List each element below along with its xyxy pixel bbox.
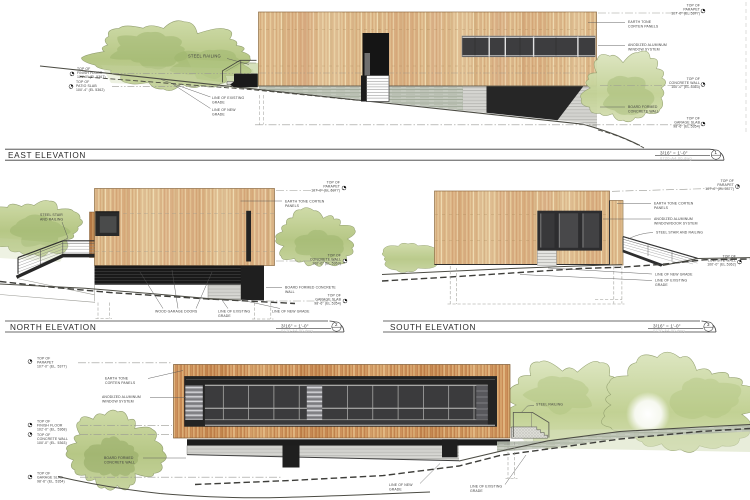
svg-text:AND RAILING: AND RAILING [40,218,63,222]
svg-text:LINE OF EXISTING: LINE OF EXISTING [212,96,244,100]
svg-text:BOARD FORMED: BOARD FORMED [104,456,134,460]
svg-text:0720-A4.00.dwg: 0720-A4.00.dwg [653,328,685,333]
svg-text:PANELS: PANELS [654,206,669,210]
svg-text:WINDOW SYSTEM: WINDOW SYSTEM [102,400,134,404]
svg-text:98'-6" (EL. 5354): 98'-6" (EL. 5354) [37,480,65,484]
svg-text:LINE OF EXISTING: LINE OF EXISTING [218,310,250,314]
svg-text:LINE OF NEW GRADE: LINE OF NEW GRADE [655,273,693,277]
svg-text:107'-0" (EL.5377): 107'-0" (EL.5377) [671,12,700,16]
svg-text:CONCRETE WALL: CONCRETE WALL [628,110,659,114]
svg-text:107'-0" (EL. 5377): 107'-0" (EL. 5377) [37,365,67,369]
svg-text:ANODIZED ALUMINUM: ANODIZED ALUMINUM [654,217,693,221]
svg-text:STEEL RAILING: STEEL RAILING [188,54,221,59]
svg-text:CORTEN PANELS: CORTEN PANELS [105,381,136,385]
svg-text:STEEL STAIR: STEEL STAIR [40,213,63,217]
svg-text:GRADE: GRADE [212,113,225,117]
svg-text:EARTH TONE: EARTH TONE [628,20,652,24]
svg-text:100'-0" (EL.5362): 100'-0" (EL.5362) [707,263,736,267]
svg-text:EARTH TONE: EARTH TONE [105,377,129,381]
svg-text:LINE OF EXISTING: LINE OF EXISTING [655,279,687,283]
svg-text:100'-0" (EL. 5363): 100'-0" (EL. 5363) [37,441,67,445]
svg-text:EAST ELEVATION: EAST ELEVATION [8,151,86,160]
svg-text:ANODIZED ALUMINUM: ANODIZED ALUMINUM [628,43,667,47]
svg-text:WOOD GARAGE DOORS: WOOD GARAGE DOORS [155,310,198,314]
svg-text:0720-A4.00.dwg: 0720-A4.00.dwg [660,155,692,160]
svg-text:GRADE: GRADE [470,489,483,493]
svg-text:CONCRETE WALL: CONCRETE WALL [104,461,135,465]
svg-text:WALL: WALL [285,290,295,294]
svg-text:EARTH TONE CORTEN: EARTH TONE CORTEN [654,202,694,206]
svg-text:101'-0" (EL 5367): 101'-0" (EL 5367) [77,75,106,79]
svg-text:LINE OF NEW: LINE OF NEW [212,108,236,112]
svg-text:98'-6" (EL.5354): 98'-6" (EL.5354) [314,302,341,306]
svg-text:LINE OF NEW GRADE: LINE OF NEW GRADE [272,310,310,314]
svg-text:CORTEN PANELS: CORTEN PANELS [628,25,659,29]
svg-text:ANODIZED ALUMINUM: ANODIZED ALUMINUM [102,395,141,399]
svg-text:PANELS: PANELS [285,204,300,208]
svg-text:102'-0" (EL. 5368): 102'-0" (EL. 5368) [37,428,67,432]
svg-text:100'-0" (EL.5363): 100'-0" (EL.5363) [671,85,700,89]
svg-text:GRADE: GRADE [389,488,402,492]
svg-text:98'-6" (EL.5354): 98'-6" (EL.5354) [673,125,700,129]
svg-text:LINE OF EXISTING: LINE OF EXISTING [470,485,502,489]
svg-text:WINDOW SYSTEM: WINDOW SYSTEM [628,48,660,52]
svg-text:NORTH ELEVATION: NORTH ELEVATION [10,323,96,332]
svg-text:LINE OF NEW: LINE OF NEW [389,483,413,487]
svg-text:WINDOW/DOOR SYSTEM: WINDOW/DOOR SYSTEM [654,222,698,226]
svg-text:100'-0" (EL.5363): 100'-0" (EL.5363) [312,262,341,266]
svg-text:GRADE: GRADE [655,283,668,287]
svg-text:STEEL STAIR AND RAILING: STEEL STAIR AND RAILING [656,231,703,235]
svg-text:BOARD FORMED CONCRETE: BOARD FORMED CONCRETE [285,286,336,290]
svg-text:107'-0" (EL.5377): 107'-0" (EL.5377) [705,187,734,191]
svg-text:SOUTH ELEVATION: SOUTH ELEVATION [390,323,476,332]
svg-text:GRADE: GRADE [218,314,231,318]
svg-text:100'-4" (EL 5362): 100'-4" (EL 5362) [76,88,105,92]
svg-text:0720-A4.00.dwg: 0720-A4.00.dwg [281,328,313,333]
svg-text:STEEL RAILING: STEEL RAILING [536,403,563,407]
svg-text:EARTH TONE CORTEN: EARTH TONE CORTEN [285,200,325,204]
svg-text:BOARD FORMED: BOARD FORMED [628,105,658,109]
svg-text:GRADE: GRADE [212,101,225,105]
